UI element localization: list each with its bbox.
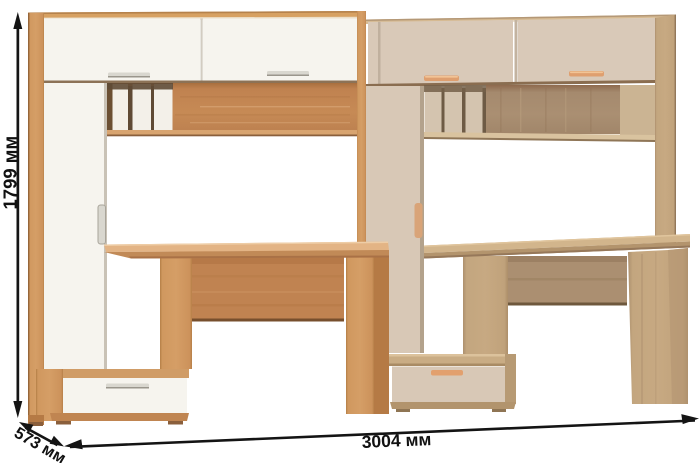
svg-text:3004 мм: 3004 мм xyxy=(361,429,431,452)
svg-text:1799 мм: 1799 мм xyxy=(0,136,21,210)
